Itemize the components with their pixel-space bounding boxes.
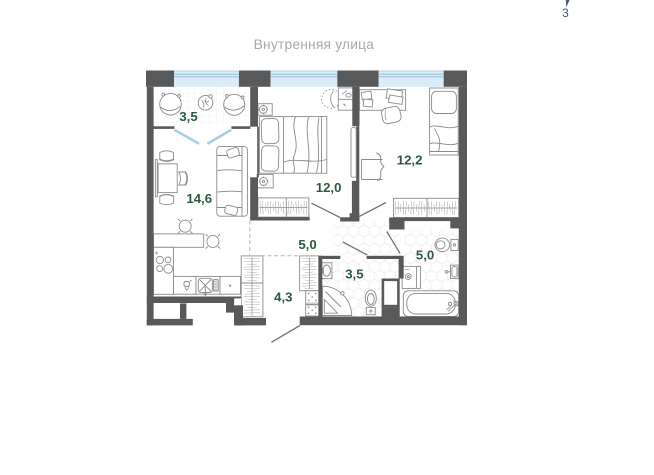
svg-text:5,0: 5,0: [298, 237, 316, 252]
svg-text:3,5: 3,5: [179, 109, 197, 124]
svg-text:12,2: 12,2: [397, 152, 423, 167]
svg-text:5,0: 5,0: [416, 248, 434, 263]
svg-text:3,5: 3,5: [345, 267, 363, 282]
svg-text:Внутренняя улица: Внутренняя улица: [254, 37, 375, 52]
svg-text:3: 3: [562, 6, 569, 20]
svg-text:14,6: 14,6: [186, 191, 212, 206]
svg-text:4,3: 4,3: [274, 290, 292, 305]
svg-text:12,0: 12,0: [316, 180, 342, 195]
